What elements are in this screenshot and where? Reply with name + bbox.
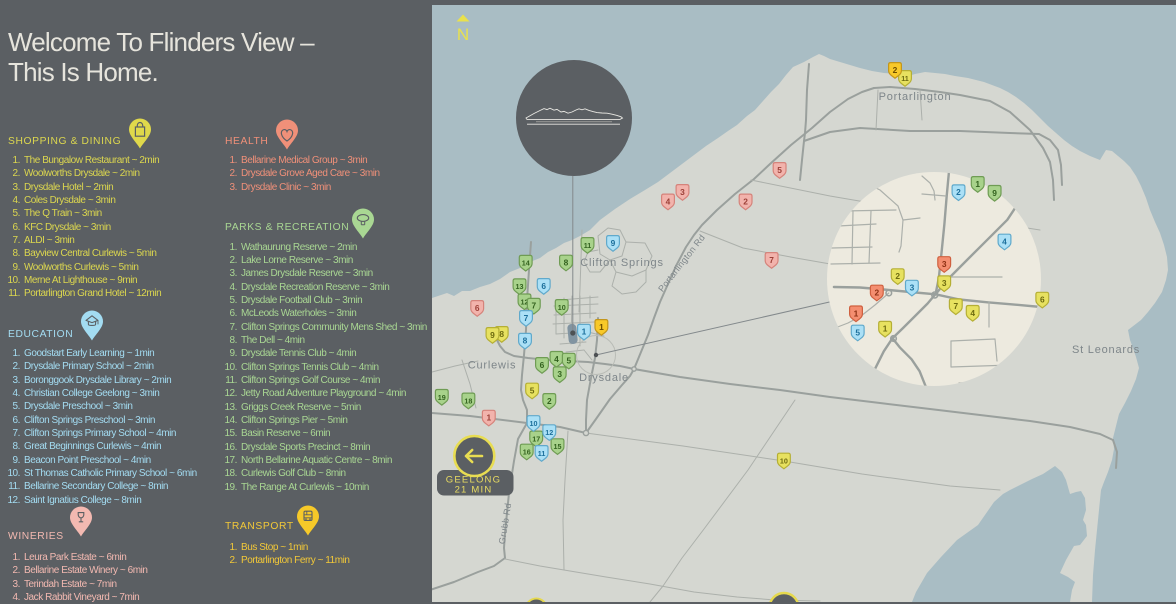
- svg-text:3: 3: [942, 278, 947, 288]
- svg-text:7: 7: [953, 301, 958, 311]
- svg-text:21 MIN: 21 MIN: [455, 485, 493, 496]
- svg-text:11: 11: [901, 74, 909, 83]
- svg-text:6: 6: [540, 360, 545, 370]
- svg-text:5: 5: [530, 386, 535, 396]
- svg-text:N: N: [457, 25, 469, 44]
- svg-text:4: 4: [970, 308, 975, 318]
- svg-text:5: 5: [777, 165, 782, 175]
- svg-text:4: 4: [554, 354, 559, 364]
- svg-text:3: 3: [910, 283, 915, 293]
- svg-text:8: 8: [523, 336, 528, 346]
- svg-text:12: 12: [545, 428, 553, 437]
- svg-text:2: 2: [547, 396, 552, 406]
- svg-text:3: 3: [680, 187, 685, 197]
- svg-text:7: 7: [531, 301, 536, 311]
- svg-text:4: 4: [666, 196, 671, 206]
- svg-text:18: 18: [464, 396, 472, 405]
- svg-text:13: 13: [516, 282, 524, 291]
- svg-text:6: 6: [1040, 295, 1045, 305]
- svg-text:10: 10: [780, 457, 788, 466]
- svg-text:7: 7: [769, 255, 774, 265]
- svg-text:2: 2: [956, 187, 961, 197]
- svg-text:1: 1: [599, 322, 604, 332]
- svg-text:1: 1: [854, 308, 859, 318]
- svg-text:14: 14: [522, 259, 530, 268]
- svg-text:9: 9: [490, 330, 495, 340]
- svg-text:6: 6: [475, 303, 480, 313]
- svg-text:1: 1: [883, 324, 888, 334]
- svg-text:Curlewis: Curlewis: [468, 360, 517, 372]
- svg-text:7: 7: [524, 313, 529, 323]
- svg-text:4: 4: [1002, 237, 1007, 247]
- svg-text:3: 3: [942, 259, 947, 269]
- svg-text:16: 16: [523, 448, 531, 457]
- svg-text:1: 1: [975, 179, 980, 189]
- svg-text:11: 11: [538, 449, 546, 458]
- svg-text:5: 5: [566, 356, 571, 366]
- svg-text:8: 8: [499, 329, 504, 339]
- svg-text:15: 15: [554, 442, 562, 451]
- svg-text:Clifton Springs: Clifton Springs: [580, 257, 664, 269]
- svg-text:2: 2: [874, 288, 879, 298]
- svg-text:2: 2: [893, 65, 898, 75]
- svg-text:9: 9: [992, 188, 997, 198]
- svg-text:17: 17: [532, 434, 540, 443]
- svg-text:1: 1: [582, 327, 587, 337]
- svg-text:8: 8: [564, 258, 569, 268]
- svg-text:Portarlington: Portarlington: [879, 91, 952, 103]
- svg-text:11: 11: [584, 241, 592, 250]
- svg-text:3: 3: [557, 369, 562, 379]
- svg-text:2: 2: [743, 196, 748, 206]
- svg-text:10: 10: [558, 303, 566, 312]
- svg-text:St Leonards: St Leonards: [1072, 344, 1140, 356]
- svg-text:5: 5: [855, 328, 860, 338]
- svg-text:6: 6: [541, 281, 546, 291]
- svg-text:1: 1: [486, 413, 491, 423]
- svg-text:9: 9: [611, 238, 616, 248]
- svg-text:10: 10: [530, 419, 538, 428]
- svg-text:2: 2: [895, 271, 900, 281]
- svg-text:19: 19: [438, 393, 446, 402]
- svg-text:Drysdale: Drysdale: [579, 372, 629, 384]
